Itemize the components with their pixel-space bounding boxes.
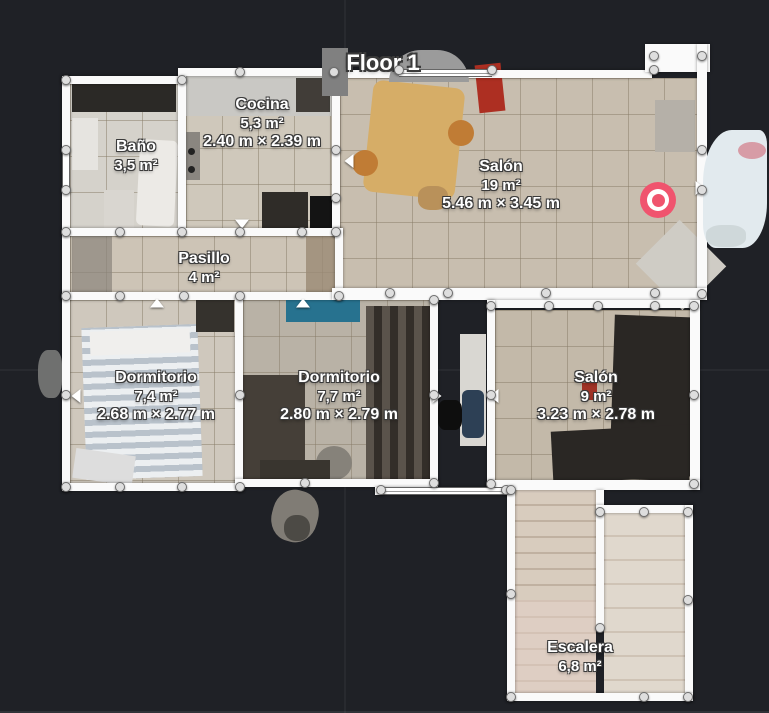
room-label-salon-9: Salón 9 m² 3.23 m × 2.78 m (537, 369, 655, 424)
wall-handle[interactable] (544, 301, 554, 311)
wall-handle[interactable] (329, 67, 339, 77)
room-label-dormitorio-77: Dormitorio 7,7 m² 2.80 m × 2.79 m (280, 369, 398, 424)
room-dimensions: 2.80 m × 2.79 m (280, 406, 398, 425)
wall-handle[interactable] (177, 482, 187, 492)
room-area: 5,3 m² (203, 115, 321, 133)
wall-handle[interactable] (650, 288, 660, 298)
room-dimensions: 3.23 m × 2.78 m (537, 406, 655, 425)
floorplan-canvas[interactable]: Floor 1 Baño 3,5 m² Cocina 5,3 m² 2.40 m… (0, 0, 769, 713)
room-name: Dormitorio (97, 369, 215, 388)
wall-handle[interactable] (443, 288, 453, 298)
door-arrow-icon (296, 299, 310, 308)
stove-shape (186, 132, 200, 180)
wall-handle[interactable] (394, 65, 404, 75)
room-label-escalera: Escalera 6,8 m² (547, 639, 613, 676)
wall-handle[interactable] (506, 692, 516, 702)
wall-handle[interactable] (486, 301, 496, 311)
room-area: 3,5 m² (114, 157, 157, 175)
wall[interactable] (62, 76, 186, 84)
wall-handle[interactable] (385, 288, 395, 298)
wall-handle[interactable] (177, 227, 187, 237)
wall-handle[interactable] (331, 227, 341, 237)
room-area: 6,8 m² (547, 658, 613, 676)
doorway-shadow-shape (72, 236, 112, 292)
chair-shape (448, 120, 474, 146)
wall-handle[interactable] (115, 291, 125, 301)
wall[interactable] (178, 68, 340, 76)
wall-handle[interactable] (697, 51, 707, 61)
wall-handle[interactable] (683, 692, 693, 702)
window-marker[interactable] (381, 487, 506, 495)
stove-knob-shape (188, 166, 195, 173)
wall-handle[interactable] (639, 692, 649, 702)
wall-handle[interactable] (595, 507, 605, 517)
cabinet-shape (655, 100, 695, 152)
scan-artifact (462, 390, 484, 438)
room-name: Dormitorio (280, 369, 398, 388)
camera-target-icon[interactable] (640, 182, 676, 218)
wall-handle[interactable] (115, 482, 125, 492)
wall-handle[interactable] (376, 485, 386, 495)
toilet-shape (104, 190, 134, 228)
wall-handle[interactable] (541, 288, 551, 298)
window-marker[interactable] (62, 150, 70, 190)
wall-handle[interactable] (61, 75, 71, 85)
wall[interactable] (487, 480, 700, 490)
wall-handle[interactable] (689, 479, 699, 489)
wall-handle[interactable] (697, 185, 707, 195)
room-dimensions: 5.46 m × 3.45 m (442, 195, 560, 214)
door-arrow-icon (150, 299, 164, 308)
wall-handle[interactable] (61, 291, 71, 301)
wall-handle[interactable] (61, 390, 71, 400)
wall-handle[interactable] (61, 185, 71, 195)
scan-artifact (438, 400, 462, 430)
wall-handle[interactable] (689, 301, 699, 311)
sink-shape (72, 118, 98, 170)
wall-handle[interactable] (235, 482, 245, 492)
wall[interactable] (507, 693, 693, 701)
chair-shape (352, 150, 378, 176)
bathroom-shelf-shape (72, 84, 176, 112)
wall-handle[interactable] (697, 289, 707, 299)
room-label-bano: Baño 3,5 m² (114, 138, 157, 175)
wall-handle[interactable] (689, 390, 699, 400)
room-area: 9 m² (537, 388, 655, 406)
wall-handle[interactable] (429, 478, 439, 488)
wall-handle[interactable] (683, 507, 693, 517)
room-escalera-right-flight-floor[interactable] (604, 513, 685, 693)
room-area: 7,4 m² (97, 388, 215, 406)
wall-handle[interactable] (595, 623, 605, 633)
camera-target-dot (652, 194, 665, 207)
room-label-pasillo: Pasillo 4 m² (178, 250, 230, 287)
camera-target-ring (647, 189, 669, 211)
room-name: Escalera (547, 639, 613, 658)
scan-artifact (38, 350, 62, 398)
room-area: 19 m² (442, 177, 560, 195)
room-dimensions: 2.68 m × 2.77 m (97, 406, 215, 425)
scan-artifact (706, 225, 746, 247)
pillow-shape (90, 328, 191, 355)
wall-handle[interactable] (697, 145, 707, 155)
room-label-salon-19: Salón 19 m² 5.46 m × 3.45 m (442, 158, 560, 213)
room-name: Cocina (203, 96, 321, 115)
wall-handle[interactable] (235, 67, 245, 77)
wall-handle[interactable] (429, 390, 439, 400)
wall-handle[interactable] (331, 193, 341, 203)
room-label-cocina: Cocina 5,3 m² 2.40 m × 2.39 m (203, 96, 321, 151)
wall-handle[interactable] (683, 595, 693, 605)
wall-handle[interactable] (639, 507, 649, 517)
stove-knob-shape (188, 148, 195, 155)
room-name: Pasillo (178, 250, 230, 269)
sofa-shape (551, 424, 694, 483)
appliance-shape (262, 192, 308, 228)
wall-handle[interactable] (506, 589, 516, 599)
wall-handle[interactable] (650, 301, 660, 311)
wall-handle[interactable] (487, 65, 497, 75)
scan-artifact (738, 142, 766, 159)
wall-handle[interactable] (177, 75, 187, 85)
wall-handle[interactable] (61, 227, 71, 237)
wall-handle[interactable] (235, 291, 245, 301)
room-dimensions: 2.40 m × 2.39 m (203, 133, 321, 152)
wall-handle[interactable] (61, 145, 71, 155)
wall-handle[interactable] (486, 390, 496, 400)
wall-handle[interactable] (429, 295, 439, 305)
wall-handle[interactable] (115, 227, 125, 237)
nightstand-shape (196, 300, 234, 332)
wall-handle[interactable] (235, 227, 245, 237)
wall[interactable] (178, 76, 186, 236)
wall[interactable] (235, 479, 438, 487)
wall-handle[interactable] (331, 145, 341, 155)
room-area: 7,7 m² (280, 388, 398, 406)
room-name: Baño (114, 138, 157, 157)
door-arrow-icon (345, 154, 354, 168)
wall-handle[interactable] (334, 291, 344, 301)
wall-handle[interactable] (300, 478, 310, 488)
wall-handle[interactable] (649, 51, 659, 61)
scan-artifact (284, 515, 310, 541)
wall-handle[interactable] (506, 485, 516, 495)
wall-handle[interactable] (649, 65, 659, 75)
wall[interactable] (62, 483, 243, 491)
room-name: Salón (537, 369, 655, 388)
room-label-dormitorio-74: Dormitorio 7,4 m² 2.68 m × 2.77 m (97, 369, 215, 424)
door-arrow-icon (72, 389, 81, 403)
wall-handle[interactable] (297, 227, 307, 237)
room-area: 4 m² (178, 269, 230, 287)
wall-handle[interactable] (486, 479, 496, 489)
floor-title: Floor 1 (346, 50, 419, 76)
wall-handle[interactable] (235, 390, 245, 400)
wall-handle[interactable] (593, 301, 603, 311)
wall-handle[interactable] (179, 291, 189, 301)
wall-handle[interactable] (61, 482, 71, 492)
room-name: Salón (442, 158, 560, 177)
